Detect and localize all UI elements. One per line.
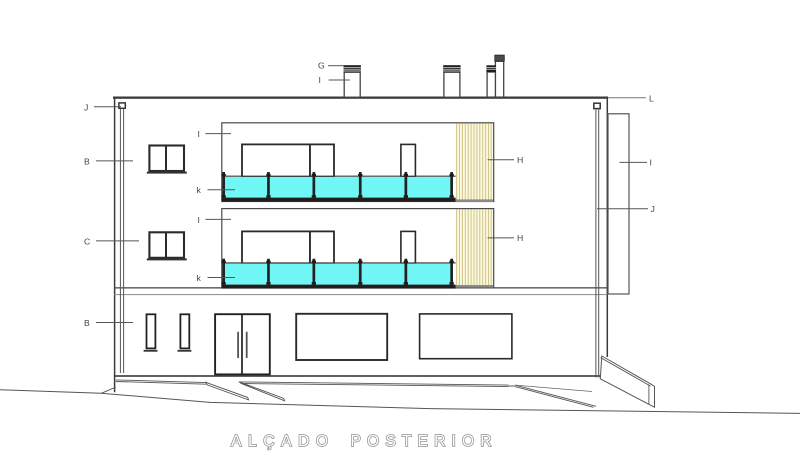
svg-text:I: I [319,75,321,85]
svg-text:B: B [84,156,90,166]
svg-text:J: J [84,102,88,112]
svg-text:J: J [651,204,655,214]
svg-text:I: I [198,215,200,225]
svg-text:G: G [318,61,325,71]
svg-text:ALÇADO: ALÇADO [231,433,335,450]
svg-text:L: L [649,94,654,104]
svg-text:I: I [650,158,652,168]
svg-text:H: H [517,233,523,243]
svg-text:I: I [198,129,200,139]
svg-text:H: H [517,155,523,165]
svg-text:POSTERIOR: POSTERIOR [351,433,498,450]
svg-text:k: k [197,273,202,283]
svg-text:B: B [84,318,90,328]
svg-text:C: C [84,236,90,246]
svg-text:k: k [197,185,202,195]
